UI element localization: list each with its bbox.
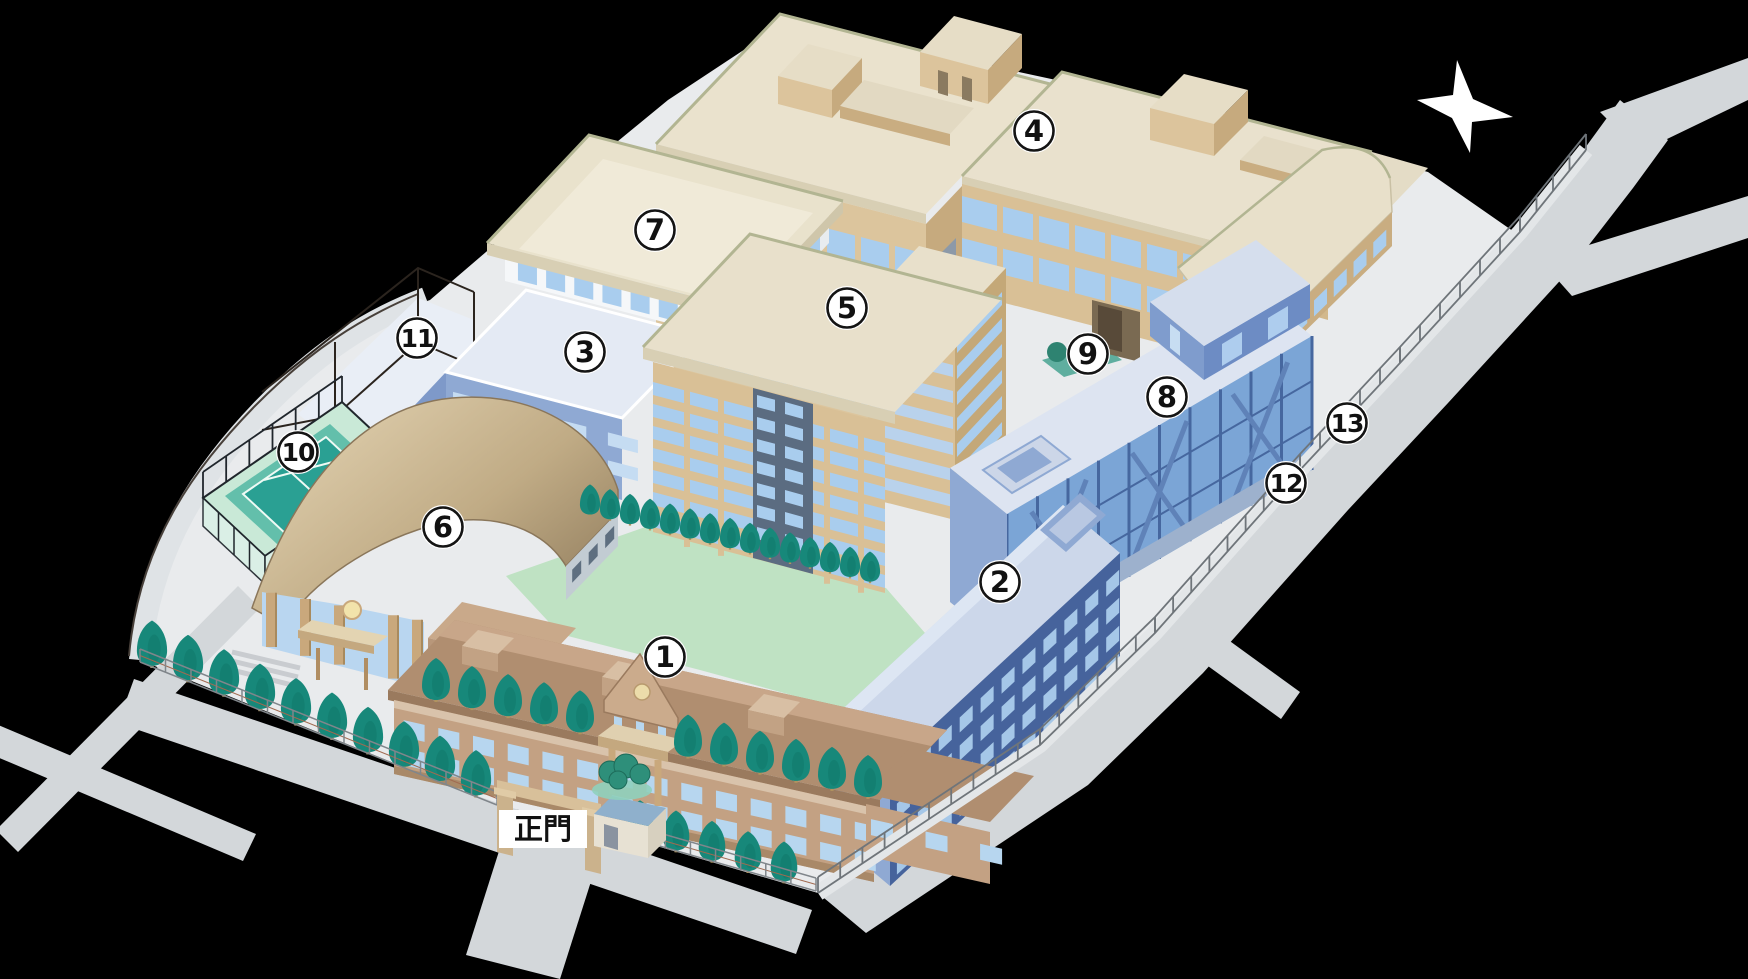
building-marker-10: 10 (276, 430, 320, 474)
svg-text:6: 6 (433, 510, 453, 544)
svg-text:13: 13 (1331, 409, 1364, 438)
svg-text:12: 12 (1270, 469, 1303, 498)
svg-text:4: 4 (1024, 114, 1044, 148)
main-gate-label: 正門 (499, 810, 587, 848)
building-marker-2: 2 (978, 560, 1022, 604)
svg-text:11: 11 (401, 324, 434, 353)
campus-map: 12345678910111213 正門 (0, 0, 1748, 979)
building-marker-6: 6 (421, 505, 465, 549)
svg-text:8: 8 (1157, 380, 1177, 414)
building-marker-8: 8 (1145, 375, 1189, 419)
svg-text:5: 5 (837, 291, 857, 325)
svg-text:3: 3 (575, 335, 595, 369)
svg-text:1: 1 (655, 640, 675, 674)
svg-text:7: 7 (645, 213, 665, 247)
building-marker-1: 1 (643, 635, 687, 679)
building-marker-12: 12 (1264, 461, 1308, 505)
monument-9-bush (1047, 342, 1067, 362)
building-marker-5: 5 (825, 286, 869, 330)
building-marker-4: 4 (1012, 109, 1056, 153)
building-marker-13: 13 (1325, 401, 1369, 445)
campus-map-canvas: 12345678910111213 正門 (0, 0, 1748, 979)
building-marker-9: 9 (1066, 332, 1110, 376)
building-marker-7: 7 (633, 208, 677, 252)
svg-text:9: 9 (1078, 337, 1098, 371)
building-marker-11: 11 (395, 316, 439, 360)
building-marker-3: 3 (563, 330, 607, 374)
svg-text:2: 2 (990, 565, 1010, 599)
svg-text:10: 10 (282, 438, 315, 467)
gate-label-text: 正門 (514, 812, 572, 846)
